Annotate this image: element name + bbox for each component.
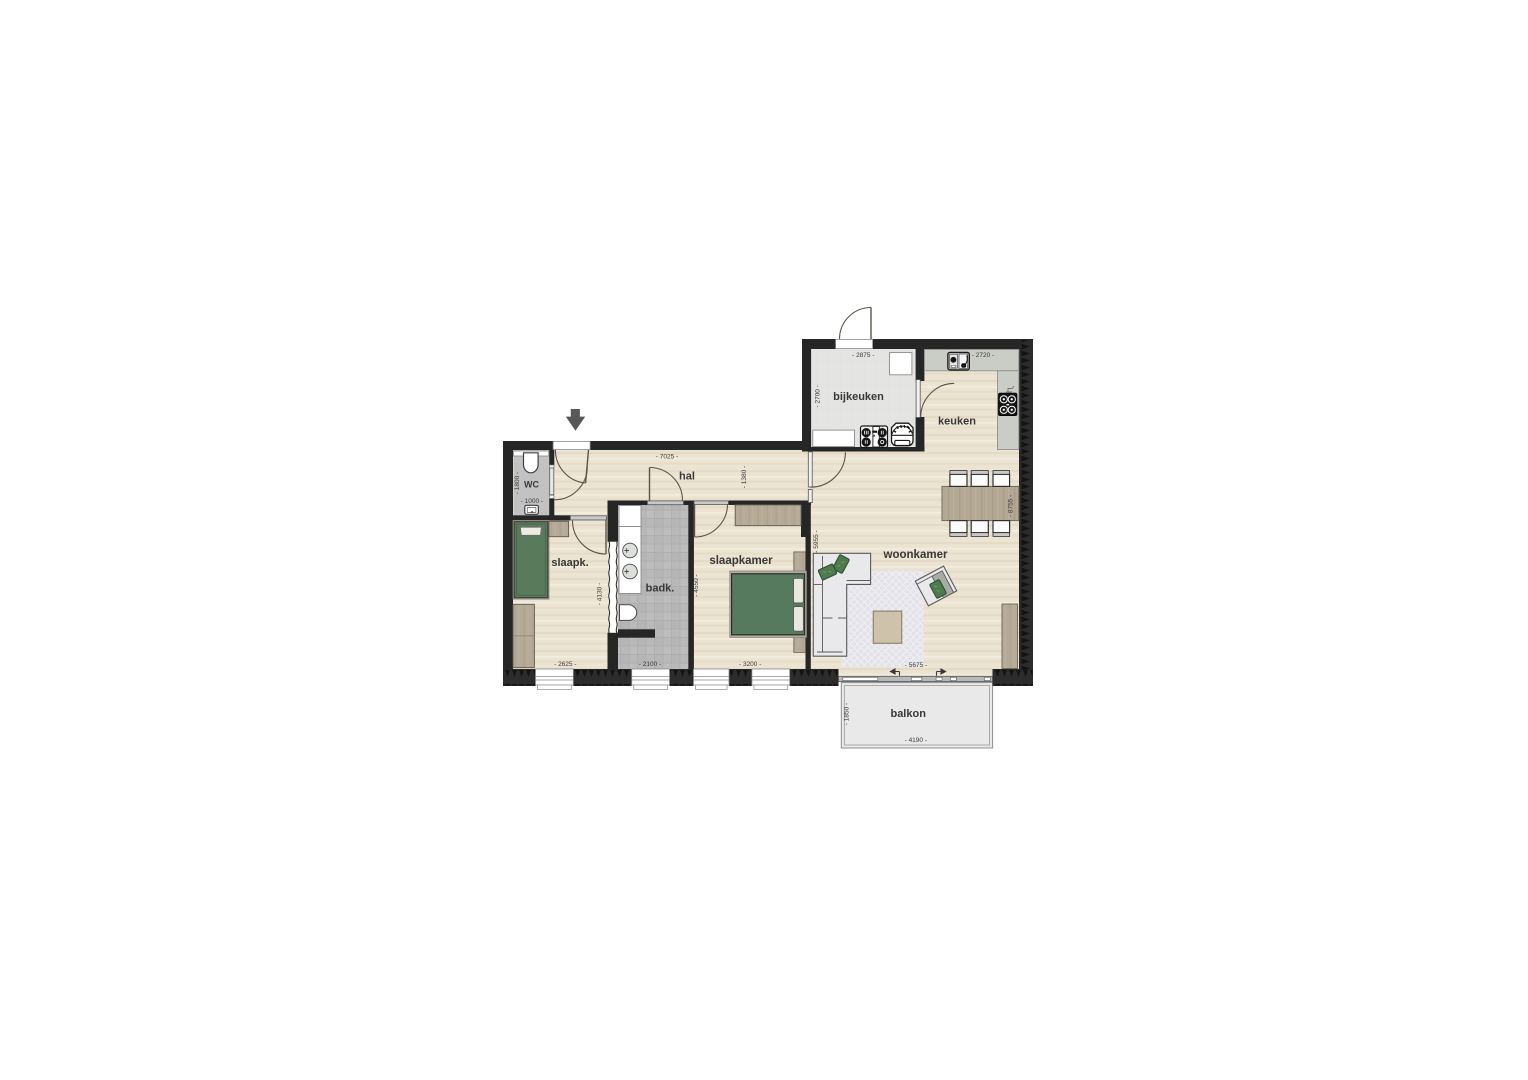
svg-text:- 5955 -: - 5955 -: [813, 530, 820, 552]
svg-text:balkon: balkon: [890, 708, 926, 720]
svg-text:- 1000 -: - 1000 -: [521, 498, 543, 505]
svg-text:- 8755 -: - 8755 -: [1007, 495, 1014, 517]
svg-text:- 2875 -: - 2875 -: [852, 352, 874, 359]
svg-text:- 2625 -: - 2625 -: [554, 661, 576, 668]
svg-text:slaapkamer: slaapkamer: [709, 555, 773, 567]
svg-text:keuken: keuken: [938, 415, 976, 427]
svg-text:hal: hal: [679, 471, 695, 483]
svg-text:- 1800 -: - 1800 -: [514, 472, 521, 494]
svg-text:slaapk.: slaapk.: [551, 557, 588, 569]
svg-text:- 3200 -: - 3200 -: [739, 661, 761, 668]
svg-text:woonkamer: woonkamer: [883, 549, 948, 561]
svg-text:- 2700 -: - 2700 -: [815, 385, 822, 407]
svg-text:- 2720 -: - 2720 -: [972, 352, 994, 359]
svg-text:bijkeuken: bijkeuken: [833, 391, 884, 403]
svg-text:- 1380 -: - 1380 -: [741, 466, 748, 488]
svg-text:- 1850 -: - 1850 -: [843, 703, 850, 725]
svg-text:- 4550 -: - 4550 -: [693, 574, 700, 596]
svg-text:- 7025 -: - 7025 -: [656, 454, 678, 461]
svg-text:WC: WC: [524, 480, 539, 490]
svg-text:- 2100 -: - 2100 -: [639, 661, 661, 668]
svg-text:- 4130 -: - 4130 -: [597, 583, 604, 605]
svg-text:- 5675 -: - 5675 -: [905, 662, 927, 669]
svg-text:- 4190 -: - 4190 -: [905, 737, 927, 744]
svg-text:badk.: badk.: [646, 583, 675, 595]
